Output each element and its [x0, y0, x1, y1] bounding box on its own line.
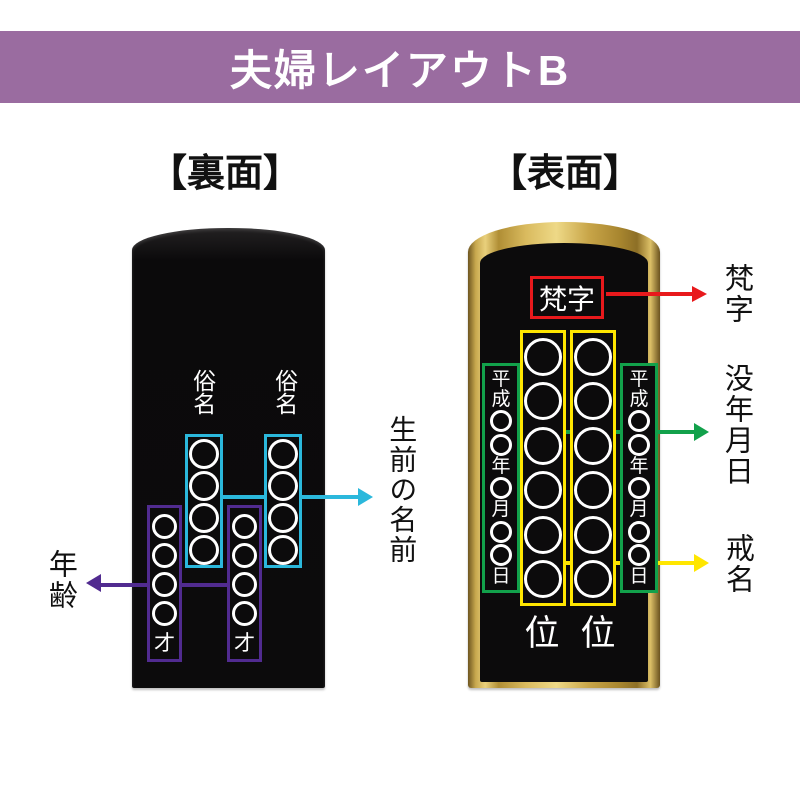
circle-placeholder [574, 516, 612, 554]
date-kanji: 月 [629, 500, 648, 519]
circle-placeholder [524, 516, 562, 554]
circle-placeholder [574, 382, 612, 420]
page-title: 夫婦レイアウトB [230, 37, 570, 98]
circle-placeholder [152, 514, 177, 539]
circle-placeholder [268, 535, 298, 565]
kaimyo-box-right [570, 330, 616, 606]
kaimyo-box-left [520, 330, 566, 606]
circle-placeholder [490, 544, 512, 566]
name-arrow-icon [358, 488, 373, 506]
bonji-annotation-label: 梵字 [720, 263, 751, 325]
circle-placeholder [574, 471, 612, 509]
circle-placeholder [524, 382, 562, 420]
circle-placeholder [232, 543, 257, 568]
circle-placeholder [628, 477, 650, 499]
kaimyo-arrow-icon [694, 554, 709, 572]
front-side-heading: 【表面】 [465, 142, 665, 197]
circle-placeholder [628, 544, 650, 566]
age-suffix-left: 才 [154, 633, 175, 654]
circle-placeholder [628, 434, 650, 456]
date-kanji: 平 [491, 370, 510, 389]
page: 夫婦レイアウトB 【裏面】 【表面】 俗名 俗名 才 才 年齢 生前の名前 梵字… [0, 0, 800, 800]
date-kanji: 年 [491, 457, 510, 476]
name-box-right [264, 434, 302, 568]
death-date-arrow-icon [694, 423, 709, 441]
common-name-header-right: 俗名 [271, 369, 297, 415]
age-suffix-right: 才 [234, 633, 255, 654]
bonji-arrow-icon [692, 286, 707, 302]
circle-placeholder [189, 471, 219, 501]
circle-placeholder [524, 338, 562, 376]
circle-placeholder [152, 543, 177, 568]
bonji-connector-line [606, 292, 694, 296]
common-name-header-left: 俗名 [189, 369, 215, 415]
bonji-box-text: 梵字 [539, 278, 595, 318]
circle-placeholder [152, 601, 177, 626]
date-kanji: 日 [629, 567, 648, 586]
date-kanji: 平 [629, 370, 648, 389]
circle-placeholder [232, 601, 257, 626]
age-arrow-icon [86, 574, 101, 592]
circle-placeholder [268, 439, 298, 469]
age-box-right: 才 [227, 505, 262, 662]
back-side-heading: 【裏面】 [125, 142, 325, 197]
rank-char-left: 位 [523, 605, 561, 656]
date-kanji: 年 [629, 457, 648, 476]
circle-placeholder [189, 535, 219, 565]
date-kanji: 日 [491, 567, 510, 586]
circle-placeholder [189, 503, 219, 533]
circle-placeholder [232, 514, 257, 539]
circle-placeholder [524, 471, 562, 509]
rank-char-right: 位 [579, 605, 617, 656]
date-kanji: 月 [491, 500, 510, 519]
death-date-annotation-label: 没年月日 [720, 363, 751, 487]
circle-placeholder [628, 521, 650, 543]
circle-placeholder [490, 521, 512, 543]
circle-placeholder [574, 427, 612, 465]
circle-placeholder [268, 503, 298, 533]
circle-placeholder [490, 477, 512, 499]
circle-placeholder [628, 410, 650, 432]
circle-placeholder [232, 572, 257, 597]
date-kanji: 成 [491, 390, 510, 409]
kaimyo-annotation-label: 戒名 [721, 533, 752, 595]
lifetime-name-annotation-label: 生前の名前 [386, 415, 416, 565]
circle-placeholder [268, 471, 298, 501]
circle-placeholder [524, 427, 562, 465]
circle-placeholder [189, 439, 219, 469]
age-annotation-label: 年齢 [44, 549, 75, 611]
death-date-box-left: 平成年月日 [482, 363, 520, 593]
circle-placeholder [574, 560, 612, 598]
age-box-left: 才 [147, 505, 182, 662]
circle-placeholder [574, 338, 612, 376]
circle-placeholder [490, 410, 512, 432]
name-box-left [185, 434, 223, 568]
circle-placeholder [152, 572, 177, 597]
circle-placeholder [490, 434, 512, 456]
circle-placeholder [524, 560, 562, 598]
date-kanji: 成 [629, 390, 648, 409]
death-date-box-right: 平成年月日 [620, 363, 658, 593]
title-banner: 夫婦レイアウトB [0, 31, 800, 103]
bonji-box: 梵字 [530, 276, 604, 319]
